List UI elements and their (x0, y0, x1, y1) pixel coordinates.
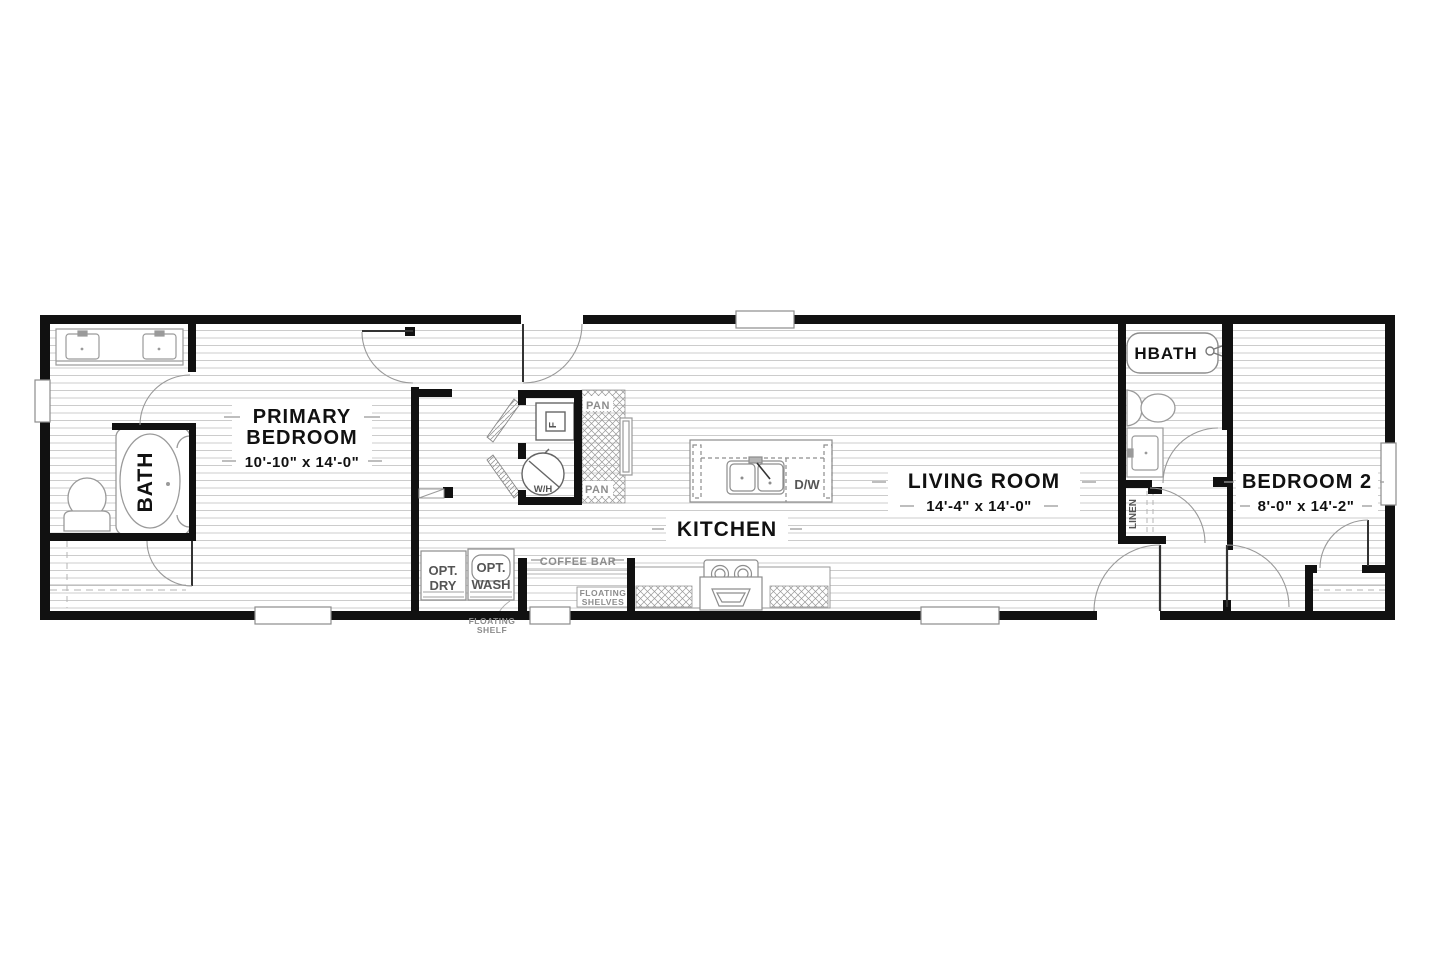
pantry-label-top: PAN (586, 400, 610, 412)
floating-shelf-callout-line2: SHELF (477, 625, 507, 635)
pass-through-ledge (419, 489, 444, 498)
pantry-label-bottom: PAN (585, 484, 609, 496)
room-dims-bedroom2: 8'-0" x 14'-2" (1258, 498, 1355, 515)
coffee-bar-label: COFFEE BAR (540, 556, 617, 568)
room-label-kitchen: KITCHEN (677, 518, 777, 541)
room-label-bath: BATH (134, 452, 157, 513)
range-stove (700, 560, 762, 610)
floor-plan: PRIMARY BEDROOM 10'-10" x 14'-0" BATH KI… (0, 0, 1440, 960)
primary-bath-vanity (56, 329, 183, 365)
refrigerator (620, 418, 632, 475)
kitchen-sink (727, 457, 784, 494)
floor-plan-page: PRIMARY BEDROOM 10'-10" x 14'-0" BATH KI… (0, 0, 1440, 960)
furnace (536, 403, 574, 440)
room-dims-primary: 10'-10" x 14'-0" (245, 454, 359, 471)
water-heater-label: W/H (534, 484, 553, 495)
room-dims-living: 14'-4" x 14'-0" (926, 498, 1032, 515)
opt-wash-label-line2: WASH (472, 577, 511, 592)
dishwasher-label: D/W (794, 477, 820, 492)
linen-label: LINEN (1128, 499, 1139, 529)
room-label-hbath: HBATH (1134, 344, 1197, 363)
room-label-bedroom2: BEDROOM 2 (1242, 471, 1372, 493)
room-label-primary-line2: BEDROOM (246, 427, 357, 449)
opt-wash-label-line1: OPT. (477, 560, 506, 575)
opt-dry-label-line2: DRY (430, 578, 457, 593)
opt-dry-label-line1: OPT. (429, 563, 458, 578)
furnace-label: F (548, 422, 559, 428)
hbath-vanity (1127, 428, 1163, 477)
floating-shelves-label-line2: SHELVES (582, 597, 625, 607)
room-label-living: LIVING ROOM (908, 470, 1060, 493)
room-label-primary-line1: PRIMARY (253, 406, 351, 428)
